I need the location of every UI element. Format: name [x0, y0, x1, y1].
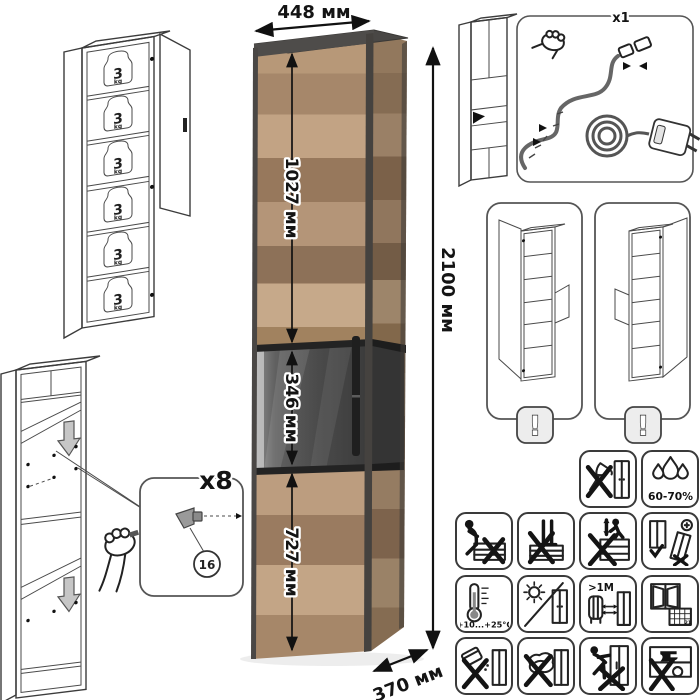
humidity-icon: 60-70% — [641, 450, 699, 508]
kit-count-label: x1 — [612, 11, 629, 26]
svg-text:kg: kg — [114, 78, 122, 86]
weight-3kg-icon: 3 kg — [104, 185, 132, 223]
open-door — [160, 34, 190, 216]
svg-text:kg: kg — [114, 168, 122, 176]
calendar-icon: 21 — [669, 608, 691, 625]
warning-exclamation-icon: ! — [517, 407, 553, 443]
glass-display-section — [254, 339, 406, 475]
heater-distance-icon: >1M — [579, 575, 637, 633]
door-variant-left-panel — [487, 203, 582, 419]
no-wet-cleaning-icon — [517, 637, 575, 695]
no-sitting-icon — [455, 512, 513, 570]
width-dimension-label: 448 мм — [277, 2, 350, 23]
anvil-icon — [660, 651, 677, 661]
no-liquids-icon — [455, 637, 513, 695]
no-direct-sunlight-icon — [517, 575, 575, 633]
kettlebell-icon — [673, 667, 682, 676]
no-standing-icon — [517, 512, 575, 570]
callout-box — [140, 478, 243, 596]
shelf-load-diagram: 3 kg 3 kg 3 kg 3 kg — [0, 0, 235, 345]
down-arrow-icon — [58, 576, 80, 613]
upper-section-label: 1027 мм — [281, 157, 301, 238]
svg-text:kg: kg — [114, 214, 122, 222]
door-variant-panels: ! ! — [455, 195, 700, 453]
shelf-assembly-diagram: x8 16 — [0, 348, 250, 700]
care-icon-grid: 60-70% — [455, 448, 700, 700]
depth-dimension-label: 370 мм — [370, 661, 446, 700]
weight-3kg-icon: 3 kg — [104, 139, 132, 177]
part-number-label: 16 — [199, 558, 216, 572]
svg-text:21: 21 — [684, 619, 691, 625]
middle-section-label: 346 мм — [281, 373, 301, 442]
svg-text:!: ! — [529, 411, 541, 442]
weight-3kg-icon: 3 kg — [104, 275, 132, 313]
temperature-icon: +10...+25°C — [455, 575, 513, 633]
lower-section-label: 727 мм — [281, 527, 301, 596]
svg-text:kg: kg — [114, 259, 122, 267]
svg-text:kg: kg — [114, 304, 122, 312]
weight-3kg-icon: 3 kg — [104, 94, 132, 132]
no-dragging-icon — [579, 637, 637, 695]
svg-text:+10...+25°C: +10...+25°C — [460, 619, 509, 629]
svg-text:kg: kg — [114, 123, 122, 131]
svg-text:!: ! — [637, 411, 649, 442]
svg-text:>1M: >1M — [588, 583, 614, 594]
no-climbing-icon — [579, 512, 637, 570]
no-heavy-load-icon — [641, 637, 699, 695]
warning-exclamation-icon: ! — [625, 407, 661, 443]
led-kit-diagram: x1 — [455, 0, 700, 195]
pin-count-label: x8 — [199, 466, 233, 495]
weight-3kg-icon: 3 kg — [104, 230, 132, 268]
svg-text:60-70%: 60-70% — [648, 489, 693, 502]
no-sharp-tools-icon — [579, 450, 637, 508]
down-arrow-icon — [58, 420, 80, 457]
cabinet-render: 448 мм 1027 мм 346 мм 727 мм 2100 мм 370… — [240, 0, 465, 700]
product-infographic: 3 kg 3 kg 3 kg 3 kg — [0, 0, 700, 700]
ventilation-icon: 21 — [641, 575, 699, 633]
door-variant-right-panel — [595, 203, 690, 419]
anchor-warning-icon — [641, 512, 699, 570]
weight-3kg-icon: 3 kg — [104, 49, 132, 87]
